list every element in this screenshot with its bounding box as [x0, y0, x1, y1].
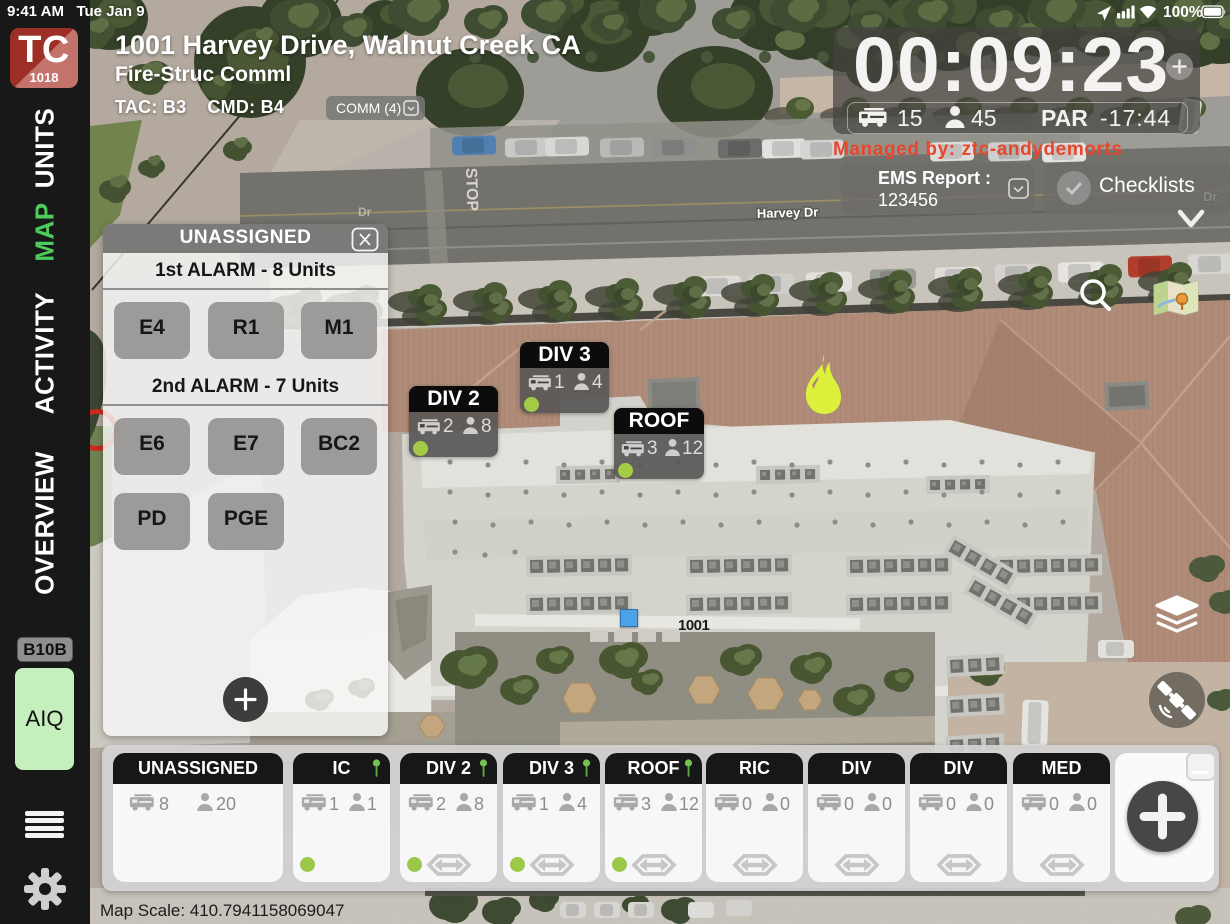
svg-text:100%: 100% — [1163, 4, 1203, 21]
